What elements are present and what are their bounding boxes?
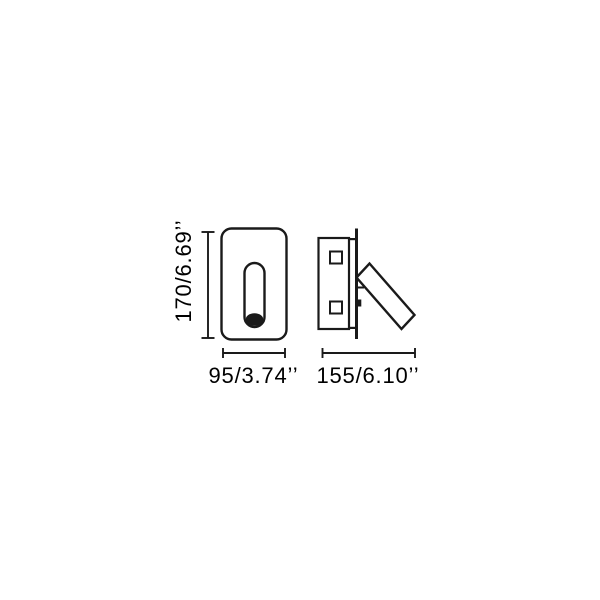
height-dimension-label: 170/6.69’’ [171, 219, 196, 322]
front-width-dimension-label: 95/3.74’’ [209, 363, 299, 388]
reading-arm [357, 264, 415, 330]
lamp-dimension-drawing: 170/6.69’’ 95/3.74’’ 155/6.10’’ [0, 0, 600, 600]
cutout-square-top [330, 252, 342, 264]
pivot-knuckle [357, 300, 362, 307]
side-width-dimension-label: 155/6.10’’ [316, 363, 419, 388]
side-width-dimension: 155/6.10’’ [316, 348, 419, 388]
drawing-canvas: 170/6.69’’ 95/3.74’’ 155/6.10’’ [0, 0, 600, 600]
cutout-square-bottom [330, 302, 342, 314]
front-width-dimension: 95/3.74’’ [209, 348, 299, 388]
height-dimension: 170/6.69’’ [171, 219, 215, 338]
side-view [319, 229, 415, 340]
front-view [222, 229, 287, 340]
lamp-tube-ellipse [246, 313, 264, 326]
